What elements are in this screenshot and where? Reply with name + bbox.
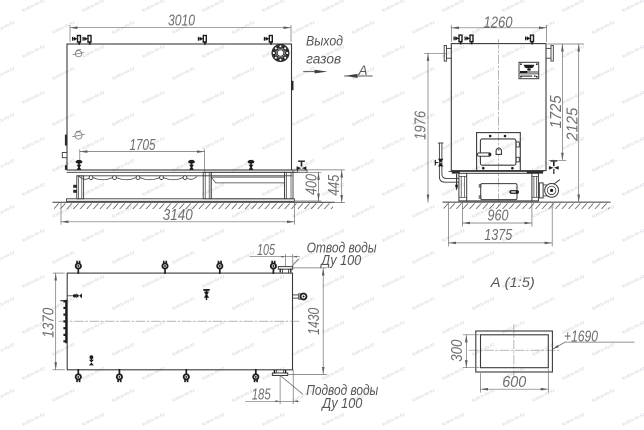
svg-text:1430: 1430 (306, 308, 323, 335)
svg-text:600: 600 (502, 374, 526, 391)
svg-text:Ду 100: Ду 100 (321, 395, 363, 412)
svg-text:1725: 1725 (548, 95, 565, 128)
svg-text:3010: 3010 (168, 12, 195, 29)
svg-text:1375: 1375 (484, 227, 512, 244)
svg-text:105: 105 (257, 242, 275, 259)
svg-text:185: 185 (252, 387, 271, 404)
svg-text:А (1:5): А (1:5) (490, 275, 535, 290)
svg-text:1976: 1976 (413, 111, 430, 140)
svg-text:Ду 100: Ду 100 (320, 252, 362, 269)
svg-text:1260: 1260 (484, 14, 513, 31)
svg-text:Выход: Выход (306, 33, 343, 48)
svg-text:960: 960 (488, 208, 509, 225)
svg-text:1705: 1705 (130, 137, 156, 154)
svg-text:400: 400 (303, 174, 320, 195)
svg-text:3140: 3140 (163, 207, 193, 224)
svg-text:+1690: +1690 (564, 329, 598, 346)
svg-text:газов: газов (306, 51, 341, 66)
svg-text:2125: 2125 (564, 108, 581, 142)
svg-text:445: 445 (326, 175, 343, 196)
svg-text:1370: 1370 (40, 308, 57, 338)
svg-text:300: 300 (449, 340, 466, 362)
